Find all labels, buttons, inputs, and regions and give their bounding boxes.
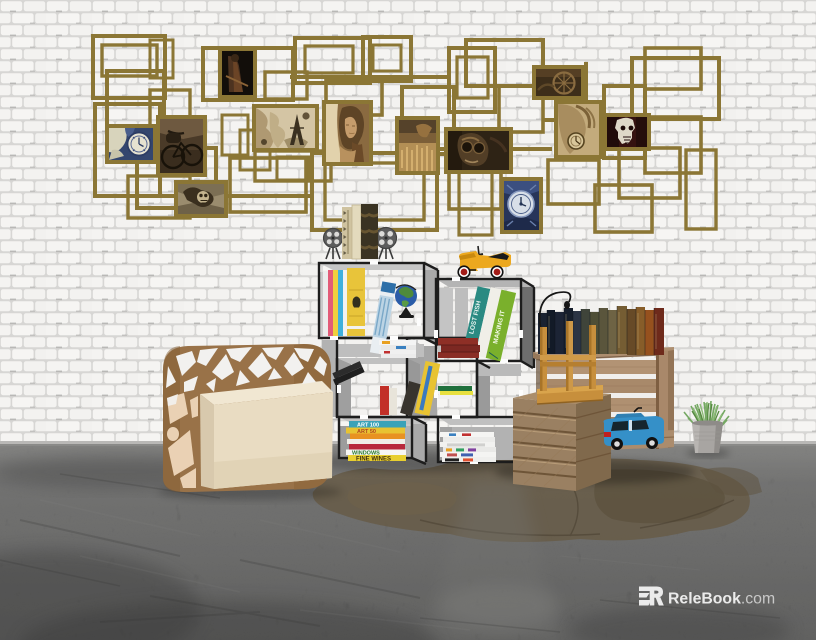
svg-text:ART 100: ART 100	[357, 423, 379, 429]
svg-text:ReleBook.com: ReleBook.com	[668, 591, 775, 608]
svg-text:ART 50: ART 50	[357, 429, 376, 435]
svg-text:FINE WINES: FINE WINES	[356, 456, 391, 462]
